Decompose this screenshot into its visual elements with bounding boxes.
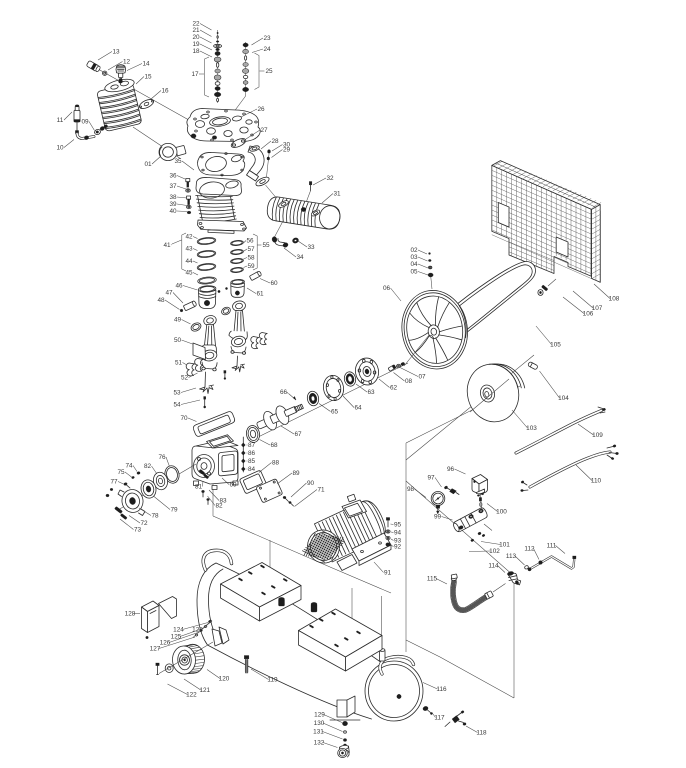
svg-text:130: 130 <box>314 720 325 727</box>
svg-text:47: 47 <box>165 290 173 297</box>
svg-text:63: 63 <box>367 389 375 396</box>
svg-text:08: 08 <box>405 378 413 385</box>
svg-text:96: 96 <box>447 466 455 473</box>
svg-text:27: 27 <box>260 127 268 134</box>
svg-text:75: 75 <box>117 469 125 476</box>
svg-text:17: 17 <box>191 71 199 78</box>
svg-text:132: 132 <box>314 740 325 747</box>
svg-text:02: 02 <box>410 247 418 254</box>
svg-text:85: 85 <box>248 458 256 465</box>
svg-text:91: 91 <box>384 570 392 577</box>
svg-text:116: 116 <box>436 686 447 693</box>
svg-text:50: 50 <box>174 337 182 344</box>
svg-text:29: 29 <box>283 147 291 154</box>
svg-text:94: 94 <box>394 530 402 537</box>
svg-text:20: 20 <box>192 34 200 41</box>
svg-text:56: 56 <box>246 238 254 245</box>
svg-text:07: 07 <box>418 374 426 381</box>
svg-text:109: 109 <box>592 432 603 439</box>
svg-text:78: 78 <box>151 513 159 520</box>
svg-text:53: 53 <box>173 390 181 397</box>
svg-text:36: 36 <box>169 173 177 180</box>
svg-text:33: 33 <box>307 244 315 251</box>
svg-text:49: 49 <box>174 317 182 324</box>
svg-text:79: 79 <box>170 507 178 514</box>
svg-text:62: 62 <box>390 385 398 392</box>
svg-text:65: 65 <box>331 409 339 416</box>
svg-text:23: 23 <box>263 35 271 42</box>
svg-text:84: 84 <box>248 466 256 473</box>
svg-text:118: 118 <box>476 730 487 737</box>
svg-text:128: 128 <box>125 611 136 618</box>
svg-text:104: 104 <box>558 395 569 402</box>
svg-text:60: 60 <box>270 280 278 287</box>
svg-text:55: 55 <box>262 242 270 249</box>
svg-text:44: 44 <box>185 258 193 265</box>
svg-text:38: 38 <box>169 194 177 201</box>
svg-text:127: 127 <box>150 646 161 653</box>
svg-text:09: 09 <box>81 119 89 126</box>
svg-text:64: 64 <box>354 405 362 412</box>
svg-text:105: 105 <box>550 342 561 349</box>
svg-text:26: 26 <box>257 106 265 113</box>
svg-text:108: 108 <box>609 296 620 303</box>
svg-text:31: 31 <box>333 191 341 198</box>
svg-text:45: 45 <box>185 270 193 277</box>
svg-text:34: 34 <box>296 254 304 261</box>
svg-text:86: 86 <box>248 450 256 457</box>
svg-text:73: 73 <box>134 527 142 534</box>
svg-text:19: 19 <box>192 41 200 48</box>
svg-text:28: 28 <box>271 138 279 145</box>
svg-text:10: 10 <box>56 145 64 152</box>
svg-text:107: 107 <box>592 305 603 312</box>
svg-text:70: 70 <box>180 415 188 422</box>
svg-text:48: 48 <box>157 297 165 304</box>
svg-text:129: 129 <box>314 712 325 719</box>
svg-text:125: 125 <box>171 634 182 641</box>
svg-text:16: 16 <box>161 88 169 95</box>
svg-text:77: 77 <box>110 479 118 486</box>
svg-text:89: 89 <box>292 470 300 477</box>
svg-text:121: 121 <box>199 687 210 694</box>
svg-text:51: 51 <box>175 360 183 367</box>
svg-text:113: 113 <box>506 553 517 560</box>
svg-text:14: 14 <box>142 61 150 68</box>
svg-text:06: 06 <box>383 285 391 292</box>
svg-text:122: 122 <box>186 692 197 699</box>
svg-text:98: 98 <box>407 486 415 493</box>
svg-text:100: 100 <box>496 509 507 516</box>
svg-text:05: 05 <box>410 269 418 276</box>
svg-text:126: 126 <box>160 640 171 647</box>
svg-text:83: 83 <box>219 498 227 505</box>
svg-text:46: 46 <box>175 283 183 290</box>
svg-text:58: 58 <box>247 255 255 262</box>
svg-text:54: 54 <box>173 402 181 409</box>
svg-text:81: 81 <box>195 484 203 491</box>
svg-text:13: 13 <box>112 49 120 56</box>
svg-text:03: 03 <box>410 254 418 261</box>
svg-text:72: 72 <box>140 520 148 527</box>
svg-text:124: 124 <box>173 627 184 634</box>
svg-text:117: 117 <box>434 715 445 722</box>
svg-text:88: 88 <box>272 460 280 467</box>
svg-text:42: 42 <box>185 234 193 241</box>
svg-text:90: 90 <box>307 480 315 487</box>
svg-text:99: 99 <box>434 514 442 521</box>
svg-text:101: 101 <box>499 542 510 549</box>
svg-text:131: 131 <box>313 729 324 736</box>
svg-text:103: 103 <box>526 425 537 432</box>
svg-text:37: 37 <box>169 183 177 190</box>
svg-text:87: 87 <box>248 442 256 449</box>
svg-text:57: 57 <box>247 246 255 253</box>
svg-text:21: 21 <box>192 27 200 34</box>
svg-text:120: 120 <box>219 676 230 683</box>
svg-text:59: 59 <box>247 263 255 270</box>
svg-text:112: 112 <box>524 546 535 553</box>
svg-text:95: 95 <box>394 522 402 529</box>
svg-text:35: 35 <box>174 158 182 165</box>
svg-text:39: 39 <box>169 201 177 208</box>
svg-text:43: 43 <box>185 246 193 253</box>
svg-text:115: 115 <box>427 576 438 583</box>
svg-text:102: 102 <box>489 548 500 555</box>
svg-text:32: 32 <box>326 175 334 182</box>
svg-text:12: 12 <box>123 59 131 66</box>
svg-text:11: 11 <box>57 117 64 124</box>
svg-text:74: 74 <box>125 463 133 470</box>
svg-text:119: 119 <box>267 677 278 684</box>
svg-text:66: 66 <box>280 389 288 396</box>
svg-text:18: 18 <box>192 48 200 55</box>
svg-text:71: 71 <box>317 487 325 494</box>
svg-text:111: 111 <box>547 543 557 550</box>
svg-text:82: 82 <box>144 463 152 470</box>
svg-text:92: 92 <box>394 544 402 551</box>
svg-text:22: 22 <box>192 21 200 28</box>
svg-text:01: 01 <box>144 161 152 168</box>
svg-text:114: 114 <box>488 563 499 570</box>
svg-text:76: 76 <box>158 454 166 461</box>
svg-text:93: 93 <box>394 538 402 545</box>
svg-text:69: 69 <box>229 482 237 489</box>
svg-text:97: 97 <box>427 475 435 482</box>
svg-text:41: 41 <box>163 242 171 249</box>
svg-text:110: 110 <box>591 478 602 485</box>
svg-text:52: 52 <box>181 375 189 382</box>
svg-text:68: 68 <box>270 442 278 449</box>
svg-text:67: 67 <box>294 431 302 438</box>
svg-text:61: 61 <box>256 291 264 298</box>
svg-text:40: 40 <box>169 208 177 215</box>
svg-text:25: 25 <box>265 68 273 75</box>
svg-text:04: 04 <box>410 261 418 268</box>
svg-text:24: 24 <box>263 46 271 53</box>
svg-text:15: 15 <box>144 74 152 81</box>
